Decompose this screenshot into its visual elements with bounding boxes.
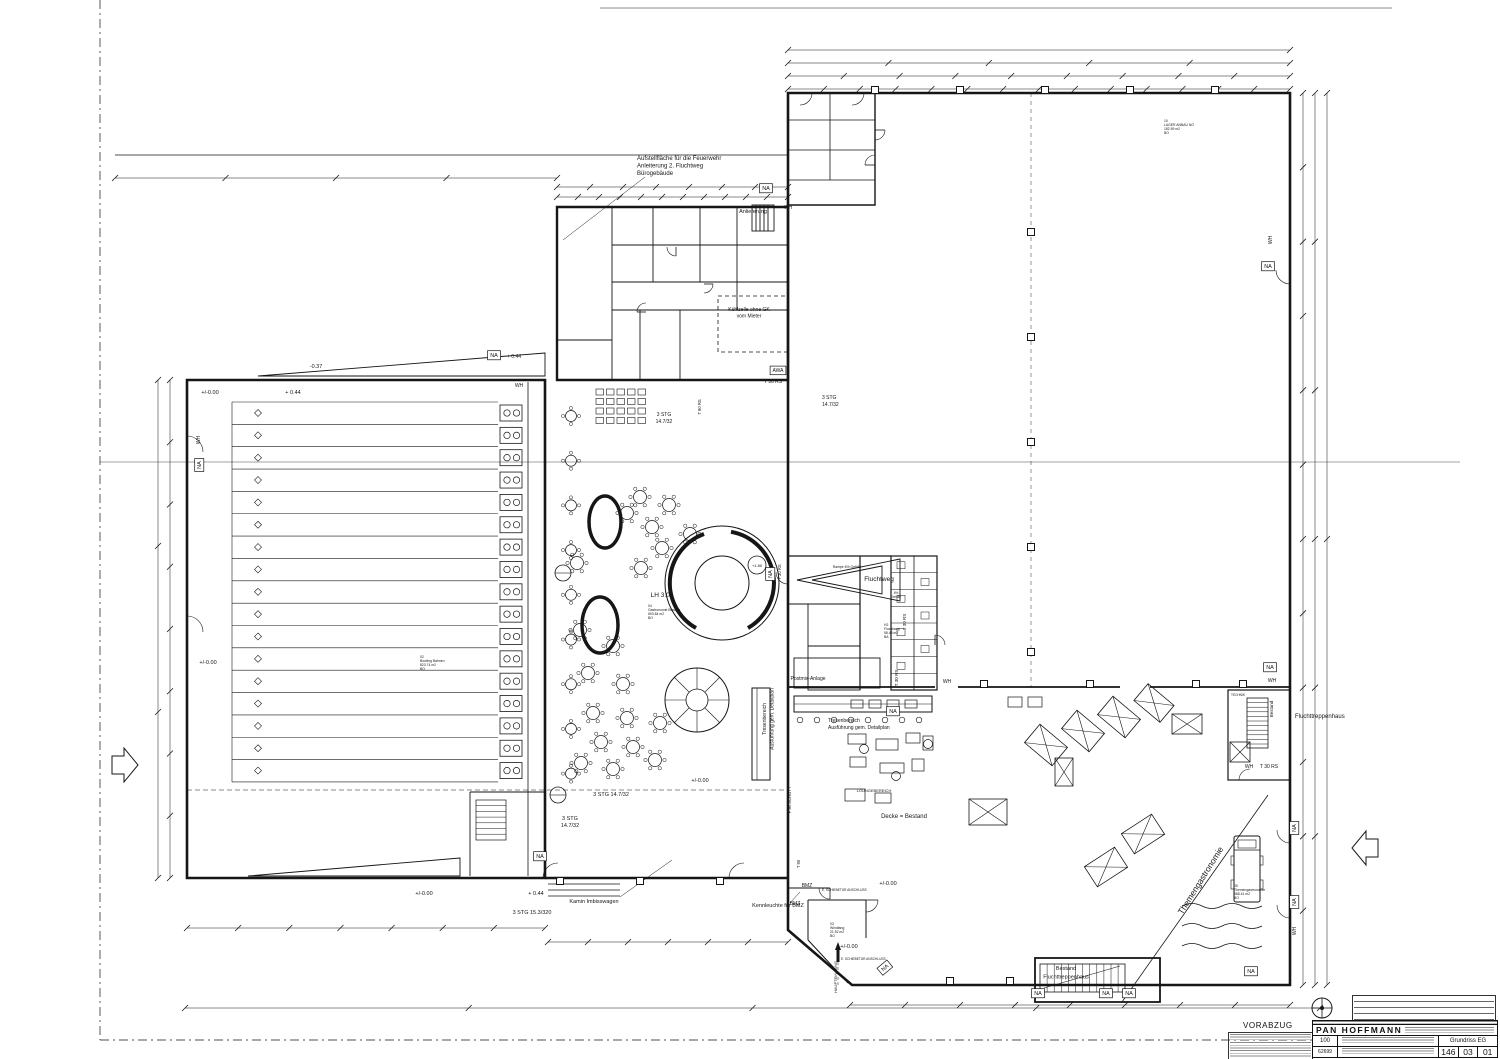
- svg-text:+/-0.00: +/-0.00: [415, 891, 432, 897]
- restaurant-tables: [566, 389, 701, 779]
- plan-label: Bürogebäude: [637, 171, 674, 177]
- plan-label: Rampe 6% Gefälle: [833, 565, 862, 569]
- plan-label: Tresenbereich: [762, 703, 768, 735]
- disclaimer-text-block: [1228, 1032, 1313, 1059]
- plan-label: T 30 RS: [1260, 764, 1279, 770]
- svg-text:Kühlzelle ohne GK: Kühlzelle ohne GK: [728, 307, 770, 313]
- plan-label: 3 STG 15.3/320: [513, 910, 552, 916]
- svg-text:Fluchttreppenhaus: Fluchttreppenhaus: [1043, 975, 1089, 981]
- door-swing: [1277, 830, 1290, 843]
- boxed-marker-label: NA: [1262, 262, 1275, 271]
- svg-text:F 90 SCHOTT: F 90 SCHOTT: [787, 786, 792, 813]
- dimension-chain: [155, 377, 161, 881]
- dimension-chain: [785, 47, 1293, 53]
- dimension-chain: [182, 1005, 1323, 1011]
- svg-text:T 30 RS: T 30 RS: [777, 564, 782, 579]
- svg-text:BMZ: BMZ: [790, 901, 801, 907]
- svg-text:BA: BA: [884, 635, 889, 639]
- door-swing: [866, 900, 878, 912]
- svg-text:Aufstellfläche für die Feuerwe: Aufstellfläche für die Feuerwehr: [637, 156, 721, 162]
- boxed-marker-label: NA: [1290, 822, 1299, 835]
- svg-text:BO: BO: [830, 934, 835, 938]
- dimension-chain: [167, 377, 173, 881]
- plan-label: LOUNGEBEREICH: [857, 788, 892, 793]
- plan-number-part: 01: [1478, 1047, 1497, 1057]
- boxed-marker-label: NA: [488, 351, 501, 360]
- svg-text:T 90: T 90: [796, 859, 801, 868]
- svg-text:NA: NA: [490, 353, 498, 359]
- plan-label: +1.80: [752, 563, 763, 568]
- plan-label: Anlieferung: [739, 209, 767, 215]
- svg-text:BO: BO: [420, 667, 425, 671]
- drawing-title: Grundriss EG: [1439, 1036, 1497, 1046]
- door-swing: [729, 863, 744, 878]
- svg-text:vom Mieter: vom Mieter: [737, 314, 762, 320]
- svg-text:14.7/32: 14.7/32: [561, 823, 579, 829]
- door-swing: [1277, 905, 1290, 918]
- svg-text:E. SCHIEBETÜR ANSCHLUSS: E. SCHIEBETÜR ANSCHLUSS: [822, 888, 867, 892]
- lounge-furniture: [797, 697, 1042, 803]
- boxed-marker-label: NA: [877, 960, 893, 975]
- dimension-chain: [785, 60, 1293, 66]
- svg-text:Rampe 6% Gefälle: Rampe 6% Gefälle: [833, 565, 862, 569]
- svg-text:NA: NA: [536, 854, 544, 860]
- svg-text:NA: NA: [762, 186, 770, 192]
- plan-label: Tresenbereich: [828, 718, 860, 724]
- svg-text:+/-0.00: +/-0.00: [879, 881, 896, 887]
- plan-label: Bestand: [1056, 966, 1076, 972]
- svg-text:NA: NA: [889, 709, 897, 715]
- svg-text:Kamin Imbisswagen: Kamin Imbisswagen: [569, 899, 618, 905]
- plan-label: Gefälle: [891, 595, 901, 599]
- svg-text:BMZ: BMZ: [802, 883, 813, 889]
- structural-columns: [557, 87, 1247, 985]
- dimension-chain: [554, 194, 791, 200]
- plan-label: Ausführung gem. Detailplan: [828, 725, 890, 731]
- svg-text:NA: NA: [1247, 969, 1255, 975]
- svg-text:WH: WH: [196, 435, 202, 444]
- svg-text:T 90 RS: T 90 RS: [697, 399, 702, 414]
- svg-text:LOUNGEBEREICH: LOUNGEBEREICH: [857, 788, 892, 793]
- svg-text:Ausführung gem. Detailplan: Ausführung gem. Detailplan: [770, 688, 776, 750]
- plan-label: Postmix-Anlage: [790, 676, 825, 682]
- svg-text:WH: WH: [1268, 235, 1274, 244]
- svg-text:AWA: AWA: [772, 368, 784, 374]
- svg-text:Bürogebäude: Bürogebäude: [637, 171, 674, 177]
- kuehlzelle-dashed-outline: [718, 296, 788, 352]
- plan-label: E. SCHIEBETÜR ANSCHLUSS: [822, 888, 867, 892]
- svg-text:NA: NA: [1034, 991, 1042, 997]
- svg-text:3 STG: 3 STG: [657, 412, 672, 418]
- door-swing: [1276, 270, 1290, 284]
- plan-label: BO: [648, 616, 653, 620]
- plan-label: WH: [515, 383, 524, 389]
- plan-number-part: 03: [1459, 1047, 1479, 1057]
- svg-text:T 30 RS: T 30 RS: [1260, 764, 1279, 770]
- svg-text:-0.37: -0.37: [310, 364, 323, 370]
- equipment-symbols: [969, 684, 1202, 887]
- plan-label: LH 3.04: [651, 592, 674, 599]
- boxed-marker-label: NA: [534, 852, 547, 861]
- svg-text:3 STG 14.7/32: 3 STG 14.7/32: [593, 792, 629, 798]
- plan-label: vom Mieter: [737, 314, 762, 320]
- floor-plan-svg: Aufstellfläche für die FeuerwehrAnleiter…: [0, 0, 1500, 1059]
- svg-text:T 30 RS: T 30 RS: [902, 614, 907, 630]
- svg-text:HAUPTEINGANG: HAUPTEINGANG: [833, 961, 838, 993]
- svg-text:+/-0.00: +/-0.00: [199, 660, 216, 666]
- direction-arrows: [112, 748, 1378, 985]
- svg-text:3 STG: 3 STG: [822, 395, 837, 401]
- plan-label: 14.7/32: [561, 823, 579, 829]
- dimension-chain: [1300, 90, 1306, 988]
- firm-name: PAN HOFFMANN: [1313, 1025, 1402, 1035]
- door-swing: [667, 247, 676, 256]
- svg-text:Anlieferung: Anlieferung: [739, 209, 767, 215]
- plan-label: 14.7/32: [656, 419, 673, 425]
- dimension-chain: [545, 939, 791, 945]
- plan-label: Fluchtweg: [864, 576, 894, 583]
- plan-label: BMZ: [790, 901, 801, 907]
- building-outline: [187, 93, 1290, 1002]
- boxed-marker-label: NA: [1123, 989, 1136, 998]
- plan-label: BO: [1164, 131, 1169, 135]
- plan-label: T 90: [796, 859, 801, 868]
- escape-route-wedges: [248, 353, 900, 876]
- door-swing: [865, 155, 875, 165]
- plan-label: T 90 RS: [764, 379, 783, 385]
- title-block: PAN HOFFMANN 100 Grundriss EG 62699 146 …: [1312, 1020, 1498, 1058]
- boxed-marker-label: AWA: [770, 366, 786, 375]
- door-swing: [1239, 769, 1250, 780]
- plan-label: HAUPTEINGANG: [833, 961, 838, 993]
- boxed-marker-label: NA: [1264, 663, 1277, 672]
- svg-text:WH: WH: [515, 383, 524, 389]
- plan-label: WH: [196, 435, 202, 444]
- svg-text:14.7/32: 14.7/32: [656, 419, 673, 425]
- svg-text:WH: WH: [1268, 678, 1277, 684]
- svg-text:Gefälle: Gefälle: [891, 595, 901, 599]
- project-microtext: [1338, 1036, 1439, 1046]
- svg-text:NA: NA: [1292, 898, 1298, 906]
- boxed-marker-label: NA: [766, 568, 775, 581]
- plan-label: Ausführung gem. Detailplan: [770, 688, 776, 750]
- dimension-chain: [785, 73, 1293, 79]
- dimension-chain: [847, 1002, 1293, 1008]
- boxed-marker-label: NA: [1290, 896, 1299, 909]
- plan-label: WH: [784, 205, 793, 211]
- plan-label: WH: [1268, 678, 1277, 684]
- architect-microtext: [1338, 1047, 1439, 1057]
- plan-label: Fluchttreppenhaus: [1043, 975, 1089, 981]
- plan-number-part: 146: [1439, 1047, 1459, 1057]
- svg-text:+ 0.44: + 0.44: [507, 354, 521, 360]
- plan-label: WH: [943, 679, 952, 685]
- door-swing: [187, 616, 203, 632]
- plan-label: T 30 RS: [902, 614, 907, 630]
- svg-text:+ 0.44: + 0.44: [285, 390, 300, 396]
- plan-label: +/-0.00: [879, 881, 896, 887]
- boxed-marker-label: NA: [760, 184, 773, 193]
- plan-label: TECHNIK: [1231, 693, 1246, 697]
- status-stamp: VORABZUG: [1243, 1021, 1293, 1030]
- svg-text:WH: WH: [1292, 926, 1298, 935]
- plan-label: +/-0.00: [415, 891, 432, 897]
- doc-number: 62699: [1313, 1047, 1338, 1057]
- svg-text:BO: BO: [648, 616, 653, 620]
- dimension-chain: [554, 184, 791, 190]
- plan-label: 3 STG: [562, 816, 578, 822]
- plan-label: +/-0.00: [199, 660, 216, 666]
- plan-label: BA: [884, 635, 889, 639]
- svg-text:Fluchttreppenhaus: Fluchttreppenhaus: [1295, 714, 1345, 720]
- scale-value: 100: [1313, 1036, 1338, 1046]
- door-swing: [800, 93, 812, 105]
- revision-table: [1352, 995, 1496, 1021]
- plan-label: WH: [1245, 764, 1254, 770]
- plan-label: + 0.44: [528, 891, 543, 897]
- plan-label: BO: [1234, 896, 1239, 900]
- svg-text:+1.80: +1.80: [752, 563, 763, 568]
- plan-label: F 90 SCHOTT: [787, 786, 792, 813]
- dimension-chain: [112, 175, 560, 181]
- svg-text:WH: WH: [943, 679, 952, 685]
- plan-label: + 0.44: [507, 354, 521, 360]
- plan-label: T 30 RS: [777, 564, 782, 579]
- svg-text:Bestand: Bestand: [1056, 966, 1076, 972]
- firm-microtext: [1405, 1027, 1494, 1034]
- svg-text:14.7/32: 14.7/32: [822, 402, 839, 408]
- svg-text:3 STG 15.3/320: 3 STG 15.3/320: [513, 910, 552, 916]
- svg-text:Tresenbereich: Tresenbereich: [762, 703, 768, 735]
- svg-text:BO: BO: [1164, 131, 1169, 135]
- svg-text:+ 0.44: + 0.44: [528, 891, 543, 897]
- door-swing: [637, 303, 646, 312]
- plan-number: 146 03 01: [1439, 1047, 1497, 1057]
- svg-text:Bestand: Bestand: [1269, 700, 1274, 717]
- generated-layer: Aufstellfläche für die FeuerwehrAnleiter…: [112, 47, 1345, 1011]
- plan-label: 3 STG 14.7/32: [593, 792, 629, 798]
- svg-text:LH 3.04: LH 3.04: [651, 592, 674, 599]
- plan-label: 3 STG: [822, 395, 837, 401]
- plan-label: Kamin Imbisswagen: [569, 899, 618, 905]
- svg-text:TECHNIK: TECHNIK: [1231, 693, 1246, 697]
- svg-text:NA: NA: [1125, 991, 1133, 997]
- plan-label: T 30 RS: [894, 670, 899, 686]
- door-swing: [704, 284, 713, 293]
- plan-label: + 0.44: [285, 390, 300, 396]
- dimension-chain: [1312, 90, 1318, 988]
- boxed-marker-label: NA: [887, 707, 900, 716]
- dimension-chain: [184, 925, 548, 931]
- svg-text:NA: NA: [1102, 991, 1110, 997]
- plan-label: E. SCHIEBETÜR ANSCHLUSS: [841, 957, 886, 961]
- svg-text:Fluchtweg: Fluchtweg: [864, 576, 894, 583]
- door-swing: [852, 93, 864, 105]
- office-partitions: [557, 205, 788, 380]
- plan-label: Anleiterung 2. Fluchtweg: [637, 164, 703, 170]
- plan-label: -0.37: [310, 364, 323, 370]
- svg-text:Decke = Bestand: Decke = Bestand: [881, 814, 927, 820]
- stair-treads: [476, 703, 1268, 992]
- svg-text:+/-0.00: +/-0.00: [691, 778, 708, 784]
- boxed-marker-label: NA: [1245, 967, 1258, 976]
- svg-text:Postmix-Anlage: Postmix-Anlage: [790, 676, 825, 682]
- svg-text:Tresenbereich: Tresenbereich: [828, 718, 860, 724]
- svg-text:WH: WH: [784, 205, 793, 211]
- boxed-marker-label: NA: [1032, 989, 1045, 998]
- plan-label: WH: [1292, 926, 1298, 935]
- plan-label: BO: [830, 934, 835, 938]
- door-swing: [875, 130, 885, 140]
- svg-text:T 90 RS: T 90 RS: [764, 379, 783, 385]
- plan-label: Fluchttreppenhaus: [1295, 714, 1345, 720]
- svg-text:+/-0.00: +/-0.00: [840, 944, 857, 950]
- annex-partitions: [788, 93, 875, 205]
- dimension-chain: [1324, 90, 1330, 988]
- plan-label: +/-0.00: [840, 944, 857, 950]
- svg-text:T 30 RS: T 30 RS: [894, 670, 899, 686]
- svg-text:NA: NA: [1264, 264, 1272, 270]
- svg-text:Anleiterung 2. Fluchtweg: Anleiterung 2. Fluchtweg: [637, 164, 703, 170]
- svg-text:+/-0.00: +/-0.00: [201, 390, 218, 396]
- plan-label: Aufstellfläche für die Feuerwehr: [637, 156, 721, 162]
- svg-text:3 STG: 3 STG: [562, 816, 578, 822]
- svg-text:Ausführung gem. Detailplan: Ausführung gem. Detailplan: [828, 725, 890, 731]
- svg-text:NA: NA: [197, 461, 203, 469]
- boxed-marker-label: NA: [195, 459, 204, 472]
- plan-label: BO: [420, 667, 425, 671]
- plan-label: WH: [1268, 235, 1274, 244]
- plan-label: +/-0.00: [201, 390, 218, 396]
- plan-label: T 90 RS: [697, 399, 702, 414]
- svg-text:WH: WH: [1245, 764, 1254, 770]
- plan-label: 3 STG: [657, 412, 672, 418]
- svg-text:E. SCHIEBETÜR ANSCHLUSS: E. SCHIEBETÜR ANSCHLUSS: [841, 957, 886, 961]
- plan-label: Bestand: [1269, 700, 1274, 717]
- svg-text:NA: NA: [768, 570, 774, 578]
- svg-text:NA: NA: [1292, 824, 1298, 832]
- boxed-marker-label: NA: [1100, 989, 1113, 998]
- plan-label: 14.7/32: [822, 402, 839, 408]
- drawing-sheet: Aufstellfläche für die FeuerwehrAnleiter…: [0, 0, 1500, 1059]
- plan-label: Decke = Bestand: [881, 814, 927, 820]
- svg-text:NA: NA: [1266, 665, 1274, 671]
- plan-label: Kühlzelle ohne GK: [728, 307, 770, 313]
- site-boundary-lines: [100, 0, 1460, 1040]
- svg-text:BO: BO: [1234, 896, 1239, 900]
- plan-label: BMZ: [802, 883, 813, 889]
- plan-label: +/-0.00: [691, 778, 708, 784]
